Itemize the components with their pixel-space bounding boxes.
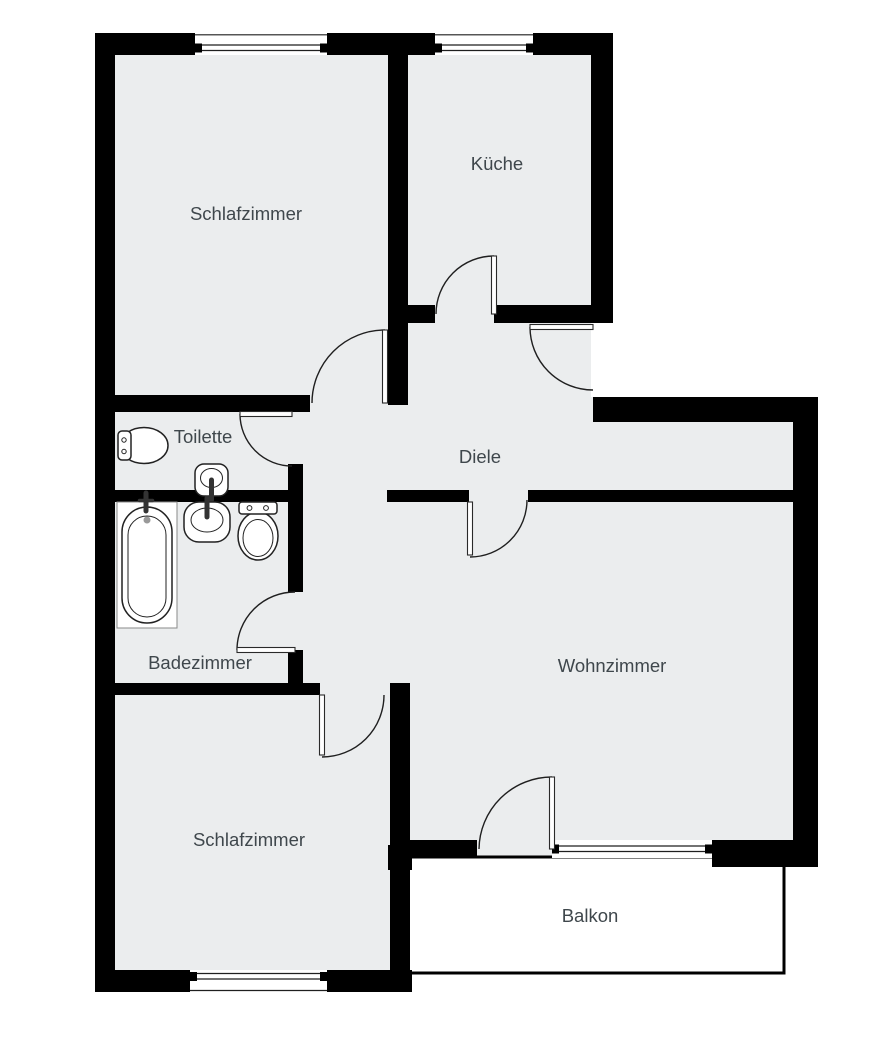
wall-badezimmer-right-lower xyxy=(288,650,303,683)
room-label-badezimmer: Badezimmer xyxy=(148,652,252,673)
wall-step-band xyxy=(593,397,818,422)
wall-schlafzimmer-unten-bottom-west xyxy=(95,970,190,992)
wall-badezimmer-bottom xyxy=(95,683,320,695)
window-kueche xyxy=(435,33,533,55)
wall-badezimmer-right-upper xyxy=(288,502,303,592)
room-label-schlafzimmer-unten: Schlafzimmer xyxy=(193,829,305,850)
wall-exterior-left xyxy=(95,33,115,992)
room-label-diele: Diele xyxy=(459,446,501,467)
toilet-icon-badezimmer xyxy=(238,502,278,560)
room-label-wohnzimmer: Wohnzimmer xyxy=(558,655,667,676)
wall-kueche-bottom-west xyxy=(388,305,435,323)
wall-exterior-right-main xyxy=(793,397,818,867)
wall-divider-center-vertical xyxy=(390,683,410,992)
room-label-balkon: Balkon xyxy=(562,905,619,926)
toilet-icon-toilette xyxy=(118,428,168,464)
room-label-kueche: Küche xyxy=(471,153,523,174)
room-label-schlafzimmer-oben: Schlafzimmer xyxy=(190,203,302,224)
room-label-toilette: Toilette xyxy=(174,426,233,447)
wall-wohnzimmer-top-east xyxy=(528,490,793,502)
floor-plan-page: Schlafzimmer Küche Toilette Diele Badezi… xyxy=(0,0,887,1045)
window-wohnzimmer-balkon xyxy=(552,840,712,858)
window-schlafzimmer-unten xyxy=(190,970,327,992)
hand-basin-icon-toilette xyxy=(195,464,228,500)
wall-exterior-top xyxy=(95,33,613,55)
wall-wohnzimmer-bottom-east xyxy=(712,840,818,867)
wash-basin-icon-badezimmer xyxy=(184,498,230,542)
wall-wohnzimmer-top-west xyxy=(387,490,469,502)
wall-divider-kueche-schlafzimmer xyxy=(388,55,408,405)
window-schlafzimmer-oben xyxy=(195,33,327,55)
wall-balkon-corner-block xyxy=(388,845,412,870)
entry-threshold xyxy=(591,323,613,397)
wall-schlafzimmer-oben-bottom xyxy=(95,395,310,412)
wall-exterior-right-kueche xyxy=(591,33,613,323)
wall-kueche-bottom-east xyxy=(494,305,591,323)
wall-toilette-right-lower xyxy=(288,464,303,492)
floor-plan-svg: Schlafzimmer Küche Toilette Diele Badezi… xyxy=(0,0,887,1045)
bathtub-icon xyxy=(117,493,177,628)
